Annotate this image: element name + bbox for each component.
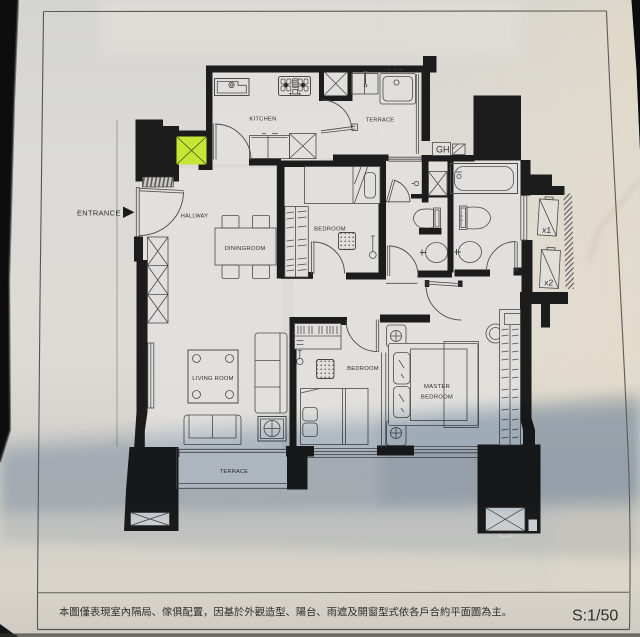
svg-text:本圖僅表現室內隔局、傢俱配置，因基於外觀造型、陽台、雨遮及開: 本圖僅表現室內隔局、傢俱配置，因基於外觀造型、陽台、雨遮及開窗型式依各戶合約平面… xyxy=(59,606,512,619)
svg-text:BEDROOM: BEDROOM xyxy=(347,366,379,372)
svg-text:BEDROOM: BEDROOM xyxy=(421,395,453,401)
svg-text:DININGROOM: DININGROOM xyxy=(225,246,266,252)
svg-text:ENTRANCE: ENTRANCE xyxy=(77,209,121,218)
svg-text:LIVING ROOM: LIVING ROOM xyxy=(192,376,233,382)
svg-text:MASTER: MASTER xyxy=(424,384,450,390)
svg-text:S:1/50: S:1/50 xyxy=(572,608,618,625)
svg-text:x2: x2 xyxy=(544,277,554,287)
svg-text:TERRACE: TERRACE xyxy=(366,118,394,124)
svg-text:x1: x1 xyxy=(542,225,552,236)
svg-text:BEDROOM: BEDROOM xyxy=(314,227,346,233)
svg-text:KITCHEN: KITCHEN xyxy=(249,117,276,123)
svg-text:HALLWAY: HALLWAY xyxy=(181,214,208,220)
svg-text:GH: GH xyxy=(436,145,450,155)
